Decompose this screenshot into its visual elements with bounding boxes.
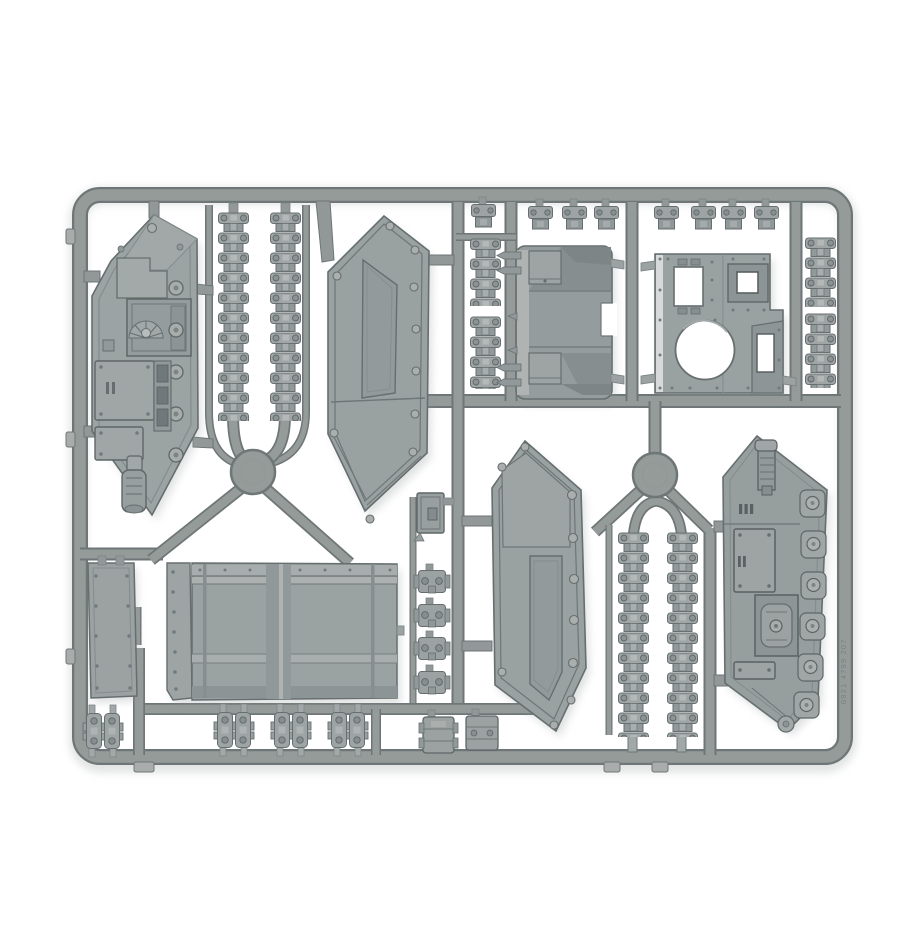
svg-text:0921 4799 207: 0921 4799 207: [839, 638, 848, 704]
